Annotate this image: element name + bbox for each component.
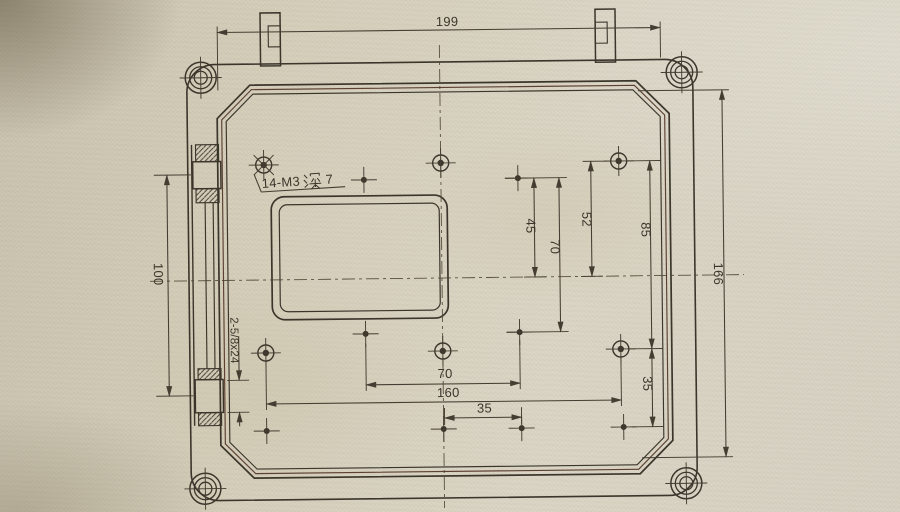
hole-cross-mark xyxy=(352,321,378,347)
scanned-drawing-page: 199 166 100 2-5/8x24 xyxy=(0,0,900,512)
corner-boss-top-left xyxy=(179,56,221,98)
hinge-section-hatch xyxy=(196,189,219,203)
dim-label-70h: 70 xyxy=(437,366,452,381)
hole-cross-mark xyxy=(254,418,280,444)
hinge-section-hatch xyxy=(198,369,221,380)
hole-cross-mark xyxy=(351,167,377,193)
lid-outline-inner xyxy=(226,90,664,470)
dimension-52: 52 xyxy=(579,161,612,276)
enclosure-lid-technical-drawing: 199 166 100 2-5/8x24 xyxy=(0,0,900,512)
top-tab-left xyxy=(260,13,281,66)
dimension-85: 85 xyxy=(627,161,663,349)
thread-note-prefix: 14-M3 xyxy=(261,174,300,191)
dim-label-166: 166 xyxy=(711,262,726,285)
dim-label-70v: 70 xyxy=(548,239,563,254)
dim-label-45: 45 xyxy=(523,218,538,233)
dimension-35-bottom: 35 xyxy=(444,400,521,425)
window-opening xyxy=(271,195,448,320)
tapped-hole xyxy=(426,148,456,178)
dimension-70-vertical: 70 xyxy=(505,178,569,333)
dim-label-35r: 35 xyxy=(640,376,655,391)
shen-character-glyph xyxy=(304,173,321,189)
hinge-knuckle-lower xyxy=(195,379,223,412)
hinge-section-hatch xyxy=(199,413,222,426)
hinge-knuckle-upper xyxy=(193,162,221,189)
dim-label-35b: 35 xyxy=(477,400,492,415)
corner-boss-top-right xyxy=(660,51,702,93)
hinge-note-label: 2-5/8x24 xyxy=(227,317,240,364)
dim-label-100: 100 xyxy=(151,263,166,286)
dimension-top-width: 199 xyxy=(217,12,661,91)
dimension-hinge-spacing: 100 xyxy=(150,175,194,396)
tapped-hole xyxy=(428,336,458,366)
corner-boss-bottom-right xyxy=(665,462,707,504)
hole-cross-mark xyxy=(431,416,457,442)
dimension-35-right: 35 xyxy=(631,348,664,426)
horizontal-centerline xyxy=(150,275,744,282)
thread-note-suffix: 7 xyxy=(325,171,333,186)
dim-label-52: 52 xyxy=(579,212,594,227)
hinge-section-hatch xyxy=(195,145,218,162)
dimension-160: 160 xyxy=(266,356,622,410)
dim-label-199: 199 xyxy=(436,14,459,29)
top-tab-right xyxy=(595,9,616,62)
dim-label-160: 160 xyxy=(437,385,460,400)
dim-label-85: 85 xyxy=(638,222,653,237)
